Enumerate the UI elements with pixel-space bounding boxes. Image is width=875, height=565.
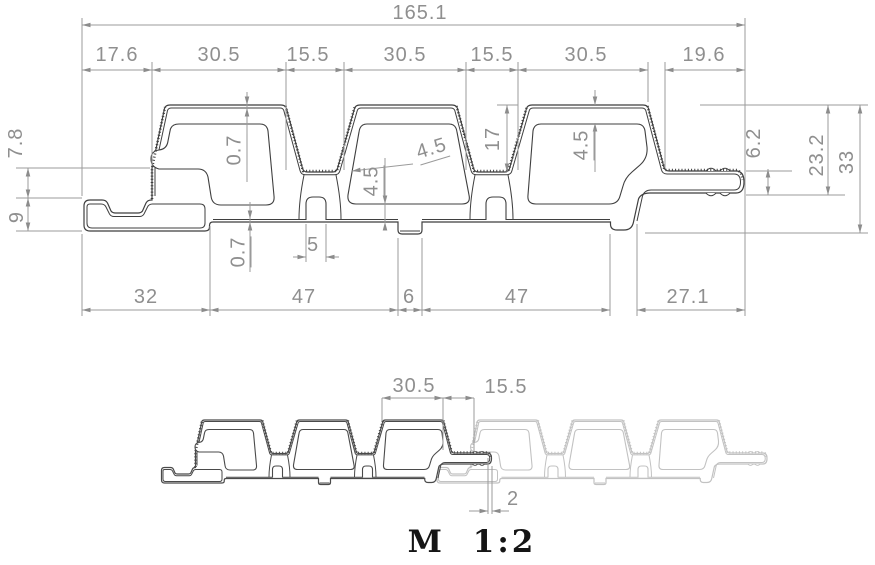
dim-label-6: 6 — [403, 287, 415, 307]
dim-label-17: 17 — [483, 127, 503, 151]
drawing-canvas — [0, 0, 875, 565]
dim-label-15-5: 15.5 — [471, 45, 514, 65]
dim-label-27-1: 27.1 — [667, 287, 710, 307]
dim-label-6-2: 6.2 — [744, 128, 764, 159]
dim-label-33: 33 — [837, 150, 857, 174]
dim-label-4-5: 4.5 — [572, 130, 595, 161]
dim-label-9: 9 — [7, 211, 27, 223]
main-view-profile — [84, 105, 744, 234]
dim-label-47: 47 — [505, 287, 529, 307]
dim-label-30-5: 30.5 — [565, 45, 608, 65]
dim-label-4-5: 4.5 — [362, 166, 385, 197]
dim-label-2: 2 — [507, 489, 519, 509]
dim-label-15-5: 15.5 — [485, 377, 528, 397]
dim-label-47: 47 — [292, 287, 316, 307]
dim-label-0-7: 0.7 — [225, 135, 248, 166]
dim-label-19-6: 19.6 — [683, 45, 726, 65]
dim-label-7-8: 7.8 — [6, 128, 26, 159]
dim-label-32: 32 — [134, 287, 158, 307]
dim-label-23-2: 23.2 — [807, 134, 827, 177]
dim-label-30-5: 30.5 — [384, 45, 427, 65]
dim-label-0-7: 0.7 — [229, 237, 252, 268]
dim-label-17-6: 17.6 — [96, 45, 139, 65]
technical-drawing-page: 165.117.630.515.530.515.530.519.67.890.7… — [0, 0, 875, 565]
scale-caption: M 1:2 — [408, 524, 537, 560]
dim-label-30-5: 30.5 — [198, 45, 241, 65]
dim-label-5: 5 — [307, 235, 319, 255]
dim-label-30-5: 30.5 — [393, 376, 436, 396]
dim-label-15-5: 15.5 — [287, 45, 330, 65]
dim-label-165-1: 165.1 — [392, 3, 447, 23]
